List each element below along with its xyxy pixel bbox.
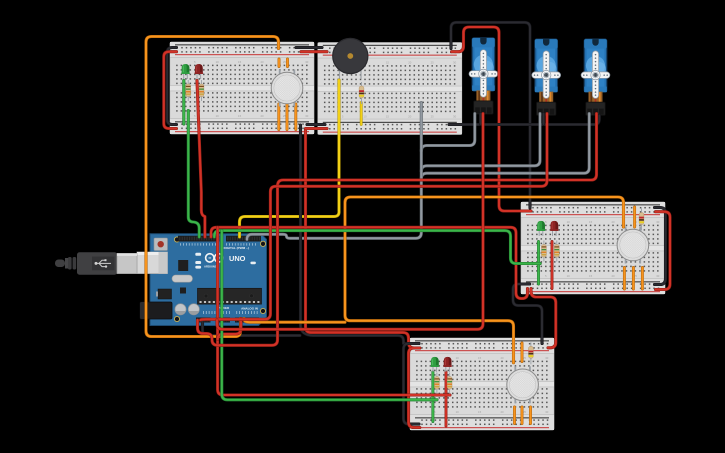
svg-text:DIGITAL (PWM ~): DIGITAL (PWM ~) [224, 246, 249, 250]
svg-text:ANALOG IN: ANALOG IN [241, 306, 258, 310]
svg-text:UNO: UNO [229, 254, 246, 263]
svg-text:POWER: POWER [218, 306, 230, 310]
svg-text:ARDUINO: ARDUINO [204, 264, 218, 268]
